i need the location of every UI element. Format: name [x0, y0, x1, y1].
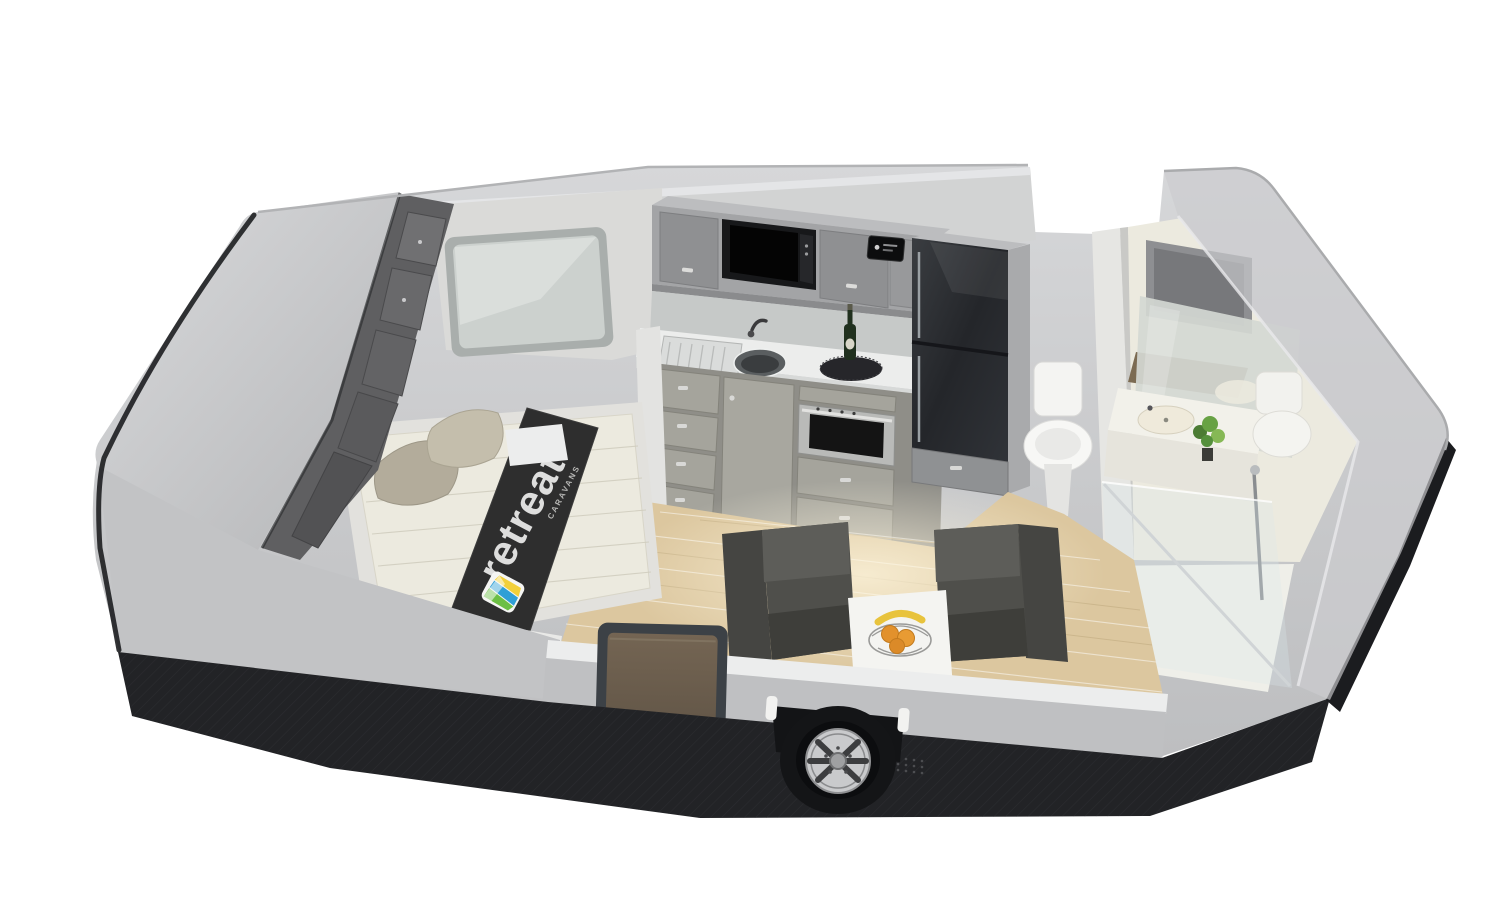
lounge-seat-left — [722, 522, 856, 668]
caravan-cutaway-render: retreat CARAVANS — [0, 0, 1500, 900]
mud-flap — [765, 696, 778, 721]
microwave — [722, 219, 816, 290]
lounge-seat-right — [934, 524, 1068, 662]
alloy-wheel — [806, 729, 870, 793]
front-window — [444, 226, 614, 357]
mud-flap — [897, 708, 910, 733]
bed-head-shelf — [505, 424, 568, 466]
stereo-panel — [867, 236, 905, 262]
fridge — [912, 232, 1030, 496]
overhead-locker-door-left — [660, 212, 718, 289]
orange — [890, 639, 905, 654]
caravan-scene: retreat CARAVANS — [0, 0, 1500, 900]
